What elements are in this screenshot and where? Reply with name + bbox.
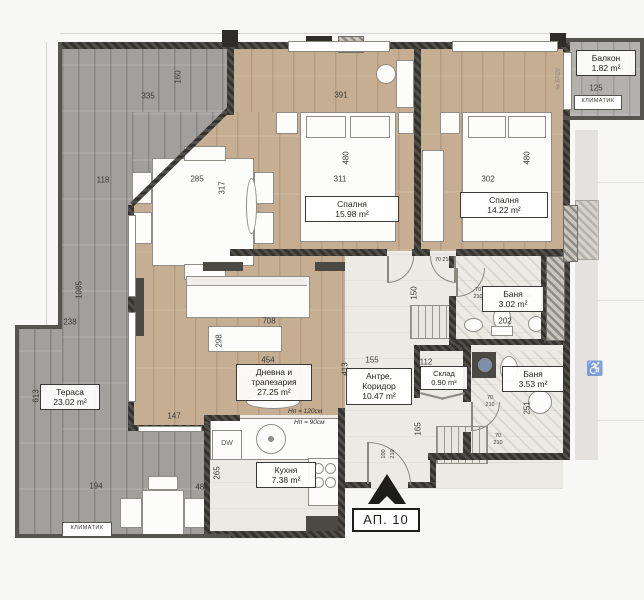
balcony-wall-right: [640, 38, 644, 120]
dim-285: 285: [190, 175, 203, 184]
room-name: Склад: [423, 369, 465, 378]
room-area: 3.53 m²: [505, 379, 561, 389]
terrace-rail-bottom: [15, 534, 231, 538]
chair: [254, 212, 274, 244]
terrace-floor-jut: [18, 328, 62, 536]
dim-165: 165: [414, 422, 423, 435]
kitchen-cabinet: [306, 516, 338, 532]
terrace-floor-top: [62, 45, 230, 112]
dim-1085: 1085: [75, 281, 84, 299]
dim-210: 210: [442, 257, 451, 263]
ac-unit-balcony: климатик: [574, 95, 622, 110]
room-label-storage: Склад 0.90 m²: [420, 366, 468, 390]
dim-194: 194: [89, 482, 102, 491]
dim-708: 708: [262, 317, 275, 326]
sideboard: [203, 262, 243, 271]
dim-317: 317: [218, 181, 227, 194]
round-basin: [528, 390, 552, 414]
dim-391: 391: [334, 91, 347, 100]
side-table: [376, 64, 396, 84]
room-area: 23.02 m²: [43, 397, 97, 407]
wall-bath1-left: [449, 296, 456, 345]
room-name: Коридор: [349, 381, 409, 391]
room-area: 3.02 m²: [485, 299, 541, 309]
note-beam: 6к Б7/20: [556, 68, 562, 89]
dim-70: 70: [487, 395, 493, 401]
dim-100: 100: [381, 449, 387, 458]
room-name: Спалня: [308, 199, 396, 209]
chair: [184, 498, 206, 528]
column: [222, 30, 238, 47]
neighbor-wall-band: [575, 130, 597, 460]
window-bedroom1: [288, 41, 390, 52]
room-area: 10.47 m²: [349, 391, 409, 401]
ac-label: климатик: [70, 525, 103, 531]
dim-160: 160: [174, 70, 183, 83]
dim-238: 238: [63, 318, 76, 327]
note-h120: Hп = 120см: [288, 408, 322, 415]
room-label-bedroom1: Спалня 15.98 m²: [305, 196, 399, 222]
dim-335: 335: [141, 92, 154, 101]
terrace-floor-left: [62, 112, 132, 430]
nightstand: [440, 112, 460, 134]
dim-210: 210: [390, 449, 396, 458]
wall-bedroom-divider: [414, 49, 421, 249]
washer-door: [478, 358, 492, 372]
room-area: 7.38 m²: [259, 475, 313, 485]
wardrobe: [396, 60, 414, 108]
terrace-rail-step: [15, 325, 62, 329]
dim-70: 70: [435, 257, 441, 263]
dim-202: 202: [498, 317, 511, 326]
room-label-living: Дневна и трапезария 27.25 m²: [236, 364, 312, 401]
dim-147: 147: [167, 412, 180, 421]
room-name: Тераса: [43, 387, 97, 397]
dishwasher: DW: [212, 430, 242, 460]
room-area: 27.25 m²: [239, 387, 309, 397]
wall-bedroom1-left: [227, 49, 234, 115]
pillow: [306, 116, 346, 138]
wall-kitchen-right: [338, 408, 345, 538]
door-leaf: [471, 402, 473, 430]
room-label-terrace: Тераса 23.02 m²: [40, 384, 100, 410]
sink-drain: [268, 436, 274, 442]
chair: [254, 172, 274, 204]
neighbor-line: [597, 130, 598, 460]
pillow: [508, 116, 546, 138]
neighbor-line: [597, 420, 644, 421]
wall-kitchen-left: [204, 415, 210, 537]
dim-118: 118: [97, 176, 110, 185]
room-name: Спалня: [463, 195, 545, 205]
room-name: трапезария: [239, 377, 309, 387]
terrace-rail-left: [58, 42, 62, 329]
wheelchair-icon: ♿: [586, 360, 603, 377]
dim-70: 70: [495, 433, 501, 439]
dim-150: 150: [410, 286, 419, 299]
terrace-rail-jut: [15, 325, 19, 538]
window-living: [128, 312, 136, 402]
room-label-balcony: Балкон 1.82 m²: [576, 50, 636, 76]
chair: [120, 498, 142, 528]
chair: [148, 476, 178, 490]
toilet-tank: [491, 326, 513, 336]
room-name: Дневна и: [239, 367, 309, 377]
dim-210: 210: [485, 402, 494, 408]
window-living: [128, 215, 136, 297]
window-bedroom2: [452, 41, 558, 52]
room-label-hall: Антре, Коридор 10.47 m²: [346, 368, 412, 405]
wall-bedrooms-bottom: [412, 249, 430, 256]
room-name: Балкон: [579, 53, 633, 63]
neighbor-shaft: [575, 200, 599, 260]
dim-70: 70: [475, 287, 481, 293]
door-leaf: [387, 256, 389, 282]
dim-480: 480: [523, 151, 532, 164]
floor-plan: ♿ DW: [0, 0, 644, 600]
note-h90: Hп = 90см: [294, 419, 325, 426]
washbasin: [464, 318, 483, 332]
room-label-bath1: Баня 3.02 m²: [482, 286, 544, 312]
dim-298: 298: [215, 334, 224, 347]
pillow: [350, 116, 390, 138]
apartment-number: АП. 10: [363, 512, 409, 527]
dim-265: 265: [213, 466, 222, 479]
dim-125: 125: [589, 84, 602, 93]
sideboard: [315, 262, 345, 271]
dim-480: 480: [342, 151, 351, 164]
sofa-back: [187, 277, 307, 286]
dim-302: 302: [481, 175, 494, 184]
room-name: Баня: [485, 289, 541, 299]
wall-bath2-bottom: [428, 453, 570, 460]
balcony-wall-bottom: [563, 116, 644, 120]
neighbor-line: [597, 182, 644, 183]
door-leaf: [367, 442, 369, 484]
room-label-kitchen: Кухня 7.38 m²: [256, 462, 316, 488]
ac-unit-terrace: климатик: [62, 522, 112, 537]
room-area: 15.98 m²: [308, 209, 396, 219]
window-living-south: [138, 426, 202, 432]
room-label-bedroom2: Спалня 14.22 m²: [460, 192, 548, 218]
room-area: 0.90 m²: [423, 378, 465, 387]
dim-311: 311: [334, 175, 347, 184]
door-leaf: [456, 268, 458, 296]
balcony-door: [563, 52, 572, 110]
ac-label: климатик: [581, 98, 614, 104]
wall-kitchen-top-stub: [204, 415, 240, 421]
dim-155: 155: [365, 356, 378, 365]
nightstand: [276, 112, 298, 134]
extension-line: [60, 33, 568, 34]
stove-burner: [325, 477, 336, 488]
dishwasher-label: DW: [221, 440, 233, 447]
room-name: Баня: [505, 369, 561, 379]
dim-210: 210: [493, 440, 502, 446]
window-leaf: [246, 178, 257, 234]
room-area: 1.82 m²: [579, 63, 633, 73]
shaft-hatched: [546, 256, 565, 341]
terrace-table: [142, 490, 184, 536]
wall-bath2-left: [463, 432, 471, 460]
wardrobe: [422, 150, 444, 242]
pillow: [468, 116, 506, 138]
balcony-wall-top: [563, 38, 644, 42]
nightstand: [398, 112, 414, 134]
neighbor-line: [597, 300, 644, 301]
room-name: Антре,: [349, 371, 409, 381]
room-name: Кухня: [259, 465, 313, 475]
wall-column-hatched: [563, 205, 578, 262]
wall-bedrooms-bottom: [456, 249, 563, 256]
room-area: 14.22 m²: [463, 205, 545, 215]
room-label-bath2: Баня 3.53 m²: [502, 366, 564, 392]
dim-486: 486: [195, 483, 208, 492]
apartment-number-box: АП. 10: [352, 508, 420, 532]
wall-entry-right: [408, 482, 436, 488]
dim-251: 251: [523, 401, 532, 414]
wall-bedrooms-bottom: [230, 249, 387, 256]
stove-burner: [325, 463, 336, 474]
